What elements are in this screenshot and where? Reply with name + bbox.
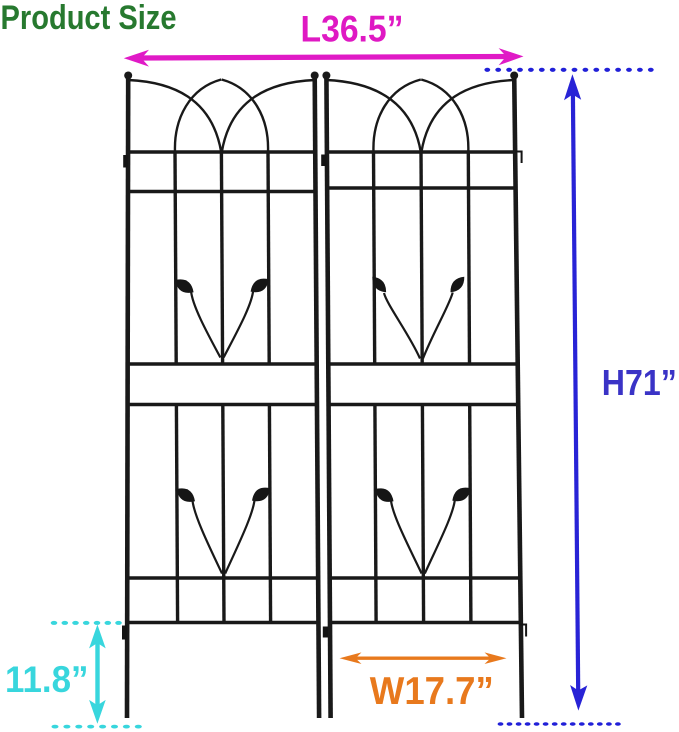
svg-text:L36.5”: L36.5” — [301, 7, 404, 49]
svg-text:11.8”: 11.8” — [5, 659, 89, 700]
svg-text:Product Size: Product Size — [1, 0, 177, 37]
svg-text:W17.7”: W17.7” — [370, 670, 494, 713]
svg-text:H71”: H71” — [602, 363, 677, 403]
